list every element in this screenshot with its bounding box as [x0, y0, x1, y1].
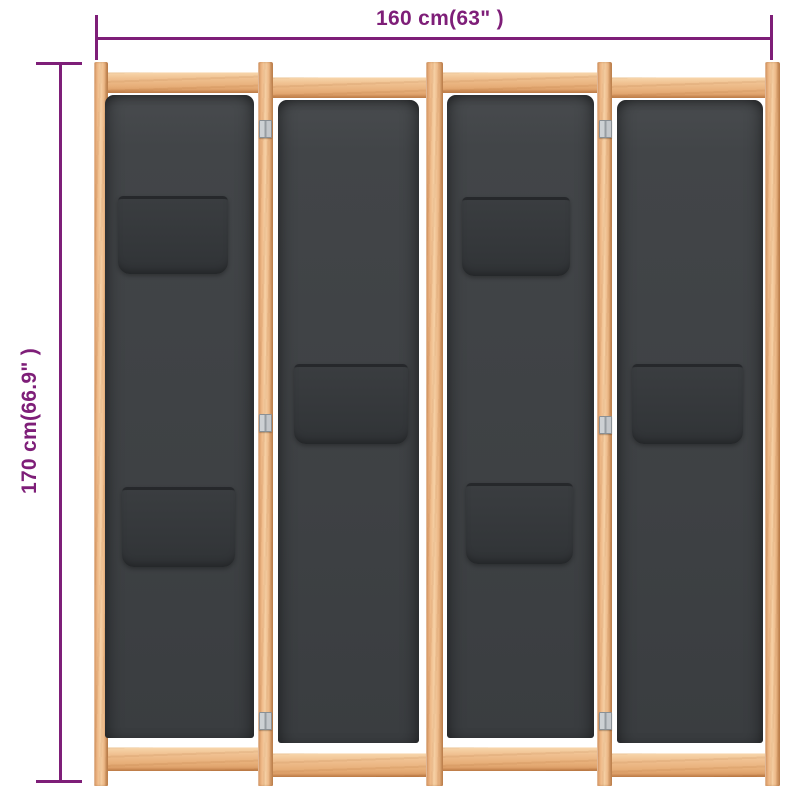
pocket-panel-3-lower [466, 483, 573, 564]
hinge-3-4-bottom [599, 712, 612, 730]
fabric-panel-1 [105, 95, 254, 738]
width-dimension-right-tick [770, 15, 773, 60]
pocket-panel-2 [294, 364, 408, 444]
pocket-panel-1-lower [122, 487, 235, 567]
bottom-rail-panel-3 [438, 747, 600, 771]
bottom-rail-panel-2 [268, 753, 430, 777]
bottom-rail-panel-1 [103, 747, 263, 771]
top-rail-panel-2 [268, 77, 430, 98]
width-dimension-line [96, 37, 772, 40]
height-dimension-top-tick [36, 62, 82, 65]
product-dimension-image: 160 cm(63" ) 170 cm(66.9" ) [0, 0, 800, 800]
height-dimension-label: 170 cm(66.9" ) [18, 348, 42, 494]
hinge-3-4-top [599, 120, 612, 138]
bottom-rail-panel-4 [606, 753, 767, 777]
hinge-1-2-bottom [259, 712, 272, 730]
top-rail-panel-4 [606, 77, 767, 98]
wood-post-right [765, 62, 780, 786]
top-rail-panel-1 [103, 72, 263, 93]
top-rail-panel-3 [438, 72, 600, 93]
hinge-3-4-middle [599, 416, 612, 434]
width-dimension-label: 160 cm(63" ) [376, 7, 504, 31]
wood-post-hinge-2-3 [426, 62, 443, 786]
fabric-panel-3 [447, 95, 594, 738]
hinge-1-2-top [259, 120, 272, 138]
height-dimension-line [59, 64, 62, 782]
height-dimension-bottom-tick [36, 780, 82, 783]
hinge-1-2-middle [259, 414, 272, 432]
width-dimension-left-tick [95, 15, 98, 60]
pocket-panel-4 [632, 364, 743, 444]
pocket-panel-3-upper [462, 197, 570, 276]
pocket-panel-1-upper [118, 196, 228, 274]
room-divider [0, 0, 800, 800]
